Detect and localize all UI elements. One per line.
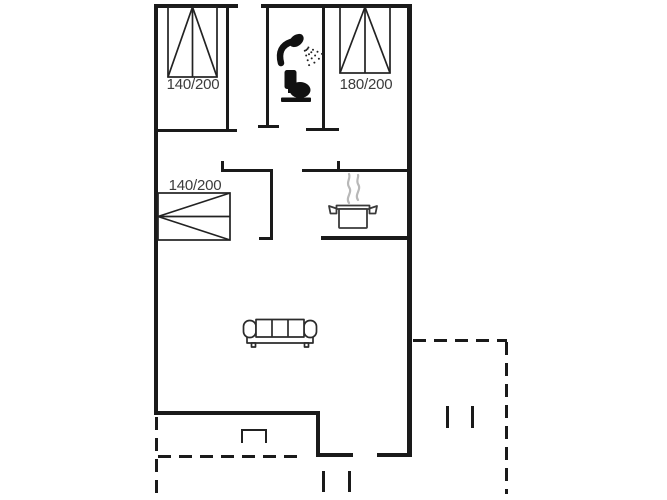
wall-bottom-left xyxy=(316,453,353,457)
wall-kitchen-jamb xyxy=(337,161,340,169)
wall-kitchen-bottom xyxy=(321,236,412,240)
dashed-terrace-right xyxy=(505,342,508,494)
step-mark xyxy=(322,471,325,492)
wall-alcove-jamb xyxy=(259,237,270,240)
wall-top-right xyxy=(261,4,412,8)
bed-icon xyxy=(340,7,390,73)
step-mark xyxy=(446,406,449,428)
door-step xyxy=(241,429,267,443)
wall-bedroom1-right xyxy=(226,4,229,132)
sofa-icon xyxy=(244,320,317,348)
wall-bathroom-right xyxy=(322,4,325,128)
wall-bathroom-left xyxy=(266,4,269,126)
wall-bedroom1-bottom xyxy=(154,129,237,132)
step-mark xyxy=(471,406,474,428)
steam-icon xyxy=(348,174,359,203)
bed-size-label: 180/200 xyxy=(338,77,394,92)
shower-icon xyxy=(280,31,323,66)
wall-bathroom-left-jamb xyxy=(258,125,279,128)
wall-left xyxy=(154,4,158,414)
wall-alcove-right xyxy=(270,169,273,240)
wall-bathroom-right-jamb xyxy=(306,128,339,131)
dashed-boundary-left xyxy=(155,417,158,500)
step-mark xyxy=(348,471,351,492)
wall-entry-right xyxy=(316,411,320,457)
cooking-pot-icon xyxy=(329,174,377,228)
wall-hall-jamb xyxy=(221,161,224,169)
dashed-boundary-bottom xyxy=(158,455,298,458)
bed-size-label: 140/200 xyxy=(167,178,223,193)
dashed-terrace-top xyxy=(413,339,507,342)
wall-right xyxy=(407,4,412,457)
toilet-icon xyxy=(281,70,311,102)
wall-kitchen-top xyxy=(302,169,412,172)
bed-icon xyxy=(168,7,217,77)
wall-bottom-right xyxy=(377,453,412,457)
wall-hall xyxy=(221,169,273,172)
bed-size-label: 140/200 xyxy=(165,77,221,92)
floor-plan: 140/200 180/200 140/200 xyxy=(0,0,667,500)
wall-living-bottom xyxy=(154,411,320,415)
bed-icon xyxy=(158,193,230,240)
